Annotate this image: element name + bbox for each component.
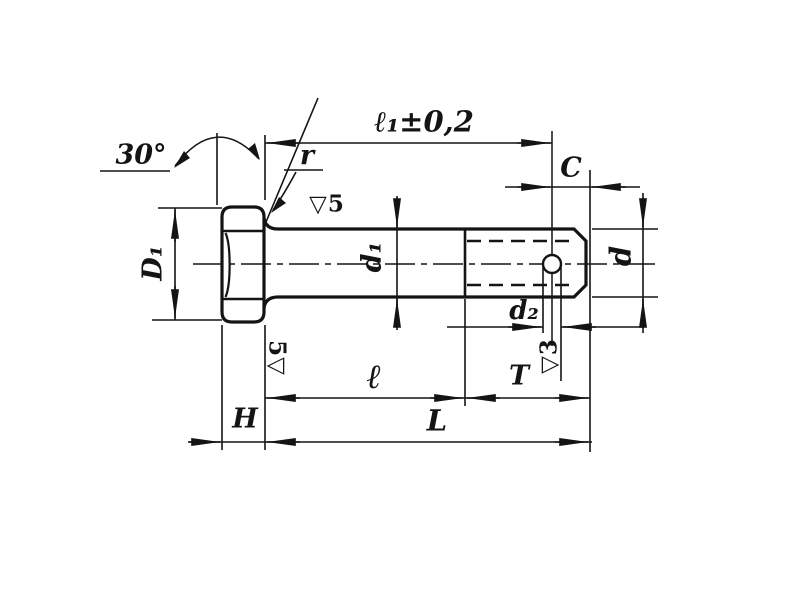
fillet-radius-label: r	[300, 143, 314, 170]
head-diameter-label: D₁	[140, 245, 167, 280]
bearing-finish-mark: 5▽	[266, 340, 289, 376]
grip-length-label: ℓ	[367, 360, 382, 394]
bolt-length-label: L	[427, 407, 447, 436]
thread-diameter-label: d	[607, 246, 636, 266]
shank-diameter-label: d₁	[359, 242, 386, 273]
cotter-pin-hole	[543, 255, 561, 273]
extension-lines	[100, 98, 658, 452]
bolt-shank-outline	[264, 218, 586, 308]
length-to-hole-label: ℓ₁±0,2	[374, 108, 474, 137]
bolt-drawing-linework	[0, 0, 800, 600]
hole-diameter-label: d₂	[509, 298, 539, 324]
thread-length-label: T	[509, 363, 529, 390]
thread-finish-mark: ▽3	[538, 338, 561, 374]
head-chamfer-angle-label: 30°	[115, 142, 166, 169]
end-chamfer-label: C	[560, 155, 582, 182]
head-facet-arc	[226, 233, 230, 297]
head-height-label: H	[232, 406, 258, 433]
shank-finish-mark: ▽5	[309, 193, 345, 216]
engineering-drawing-canvas: 30° r ℓ₁±0,2 C D₁ d₁ ▽5 d d₂ ▽3 5▽ ℓ T L…	[0, 0, 800, 600]
